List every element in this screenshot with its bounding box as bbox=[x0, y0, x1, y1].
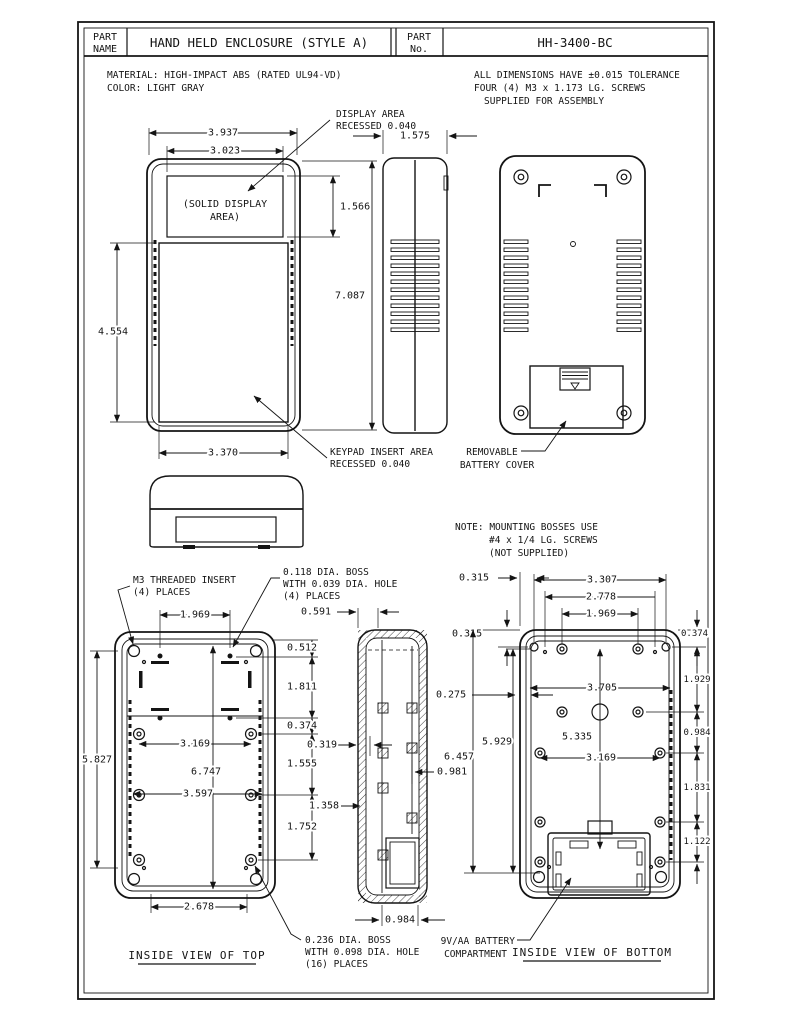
battery-compartment-callout-line2: COMPARTMENT bbox=[444, 949, 507, 960]
dim-top-left-height: 5.827 bbox=[82, 755, 112, 766]
dim-dot-span: 2.778 bbox=[586, 592, 616, 603]
tolerance-note-line1: ALL DIMENSIONS HAVE ±0.015 TOLERANCE bbox=[474, 70, 680, 81]
mounting-note-line1: NOTE: MOUNTING BOSSES USE bbox=[455, 522, 598, 533]
dim-bottom-width: 0.984 bbox=[385, 915, 415, 926]
bottom-view-title: INSIDE VIEW OF BOTTOM bbox=[512, 946, 672, 959]
dim-boss-row2: 1.555 bbox=[287, 759, 317, 770]
dim-row1: 1.929 bbox=[683, 675, 710, 685]
dim-overall-height: 6.457 bbox=[444, 752, 474, 763]
dim-boss-wide-span: 3.597 bbox=[183, 789, 213, 800]
material-note-line1: MATERIAL: HIGH-IMPACT ABS (RATED UL94-VD… bbox=[107, 70, 342, 81]
part-name-label-line1: PART bbox=[93, 32, 117, 43]
mounting-note-line3: (NOT SUPPLIED) bbox=[489, 548, 569, 559]
m3-threaded-inserts bbox=[151, 654, 239, 721]
slot-right bbox=[248, 671, 252, 688]
dim-wall: 0.319 bbox=[307, 740, 337, 751]
battery-cover-callout-line2: BATTERY COVER bbox=[460, 460, 535, 471]
corner-screw-holes bbox=[129, 646, 262, 885]
dim-row3: 1.831 bbox=[683, 783, 710, 793]
dim-inner-height: 6.747 bbox=[191, 767, 221, 778]
keypad-callout-line1: KEYPAD INSERT AREA bbox=[330, 447, 433, 458]
solid-display-text-line1: (SOLID DISPLAY bbox=[183, 199, 267, 210]
dim-center-height: 5.335 bbox=[562, 732, 592, 743]
foot-right bbox=[258, 545, 270, 549]
battery-cover-callout-line1: REMOVABLE bbox=[466, 447, 518, 458]
top-view-title: INSIDE VIEW OF TOP bbox=[128, 949, 265, 962]
end-recess bbox=[176, 517, 276, 542]
boss4-callout-line3: (4) PLACES bbox=[283, 591, 340, 602]
dim-top-step: 0.591 bbox=[301, 607, 331, 618]
boss4-leader bbox=[233, 578, 280, 647]
dim-insert-rows: 1.811 bbox=[287, 682, 317, 693]
corner-screw-icons bbox=[514, 170, 631, 420]
display-area-leader bbox=[248, 120, 330, 191]
dim-bottom-span: 2.678 bbox=[184, 902, 214, 913]
dim-row-gap: 0.374 bbox=[287, 721, 317, 732]
m3-insert-callout-line2: (4) PLACES bbox=[133, 587, 190, 598]
corner-bracket-right bbox=[594, 185, 606, 197]
dim-front-overall-height: 7.087 bbox=[335, 291, 365, 302]
section-hatch bbox=[358, 630, 427, 903]
keypad-leader bbox=[254, 396, 327, 458]
dim-top-inset: 0.512 bbox=[287, 643, 317, 654]
m3-insert-callout-line1: M3 THREADED INSERT bbox=[133, 575, 236, 586]
part-no-label-line2: No. bbox=[410, 44, 428, 55]
dim-boss-depth: 1.358 bbox=[309, 801, 339, 812]
dim-boss-height: 0.981 bbox=[437, 767, 467, 778]
drawing-sheet: PART NAME HAND HELD ENCLOSURE (STYLE A) … bbox=[0, 0, 791, 1024]
dim-front-overall-width: 3.937 bbox=[208, 128, 238, 139]
boss16-callout-line2: WITH 0.098 DIA. HOLE bbox=[305, 947, 420, 958]
foot-left bbox=[183, 545, 195, 549]
battery-well-section bbox=[386, 838, 419, 888]
battery-compartment bbox=[548, 821, 650, 895]
dim-inner-width: 3.705 bbox=[587, 683, 617, 694]
back-view: REMOVABLE BATTERY COVER bbox=[460, 156, 645, 471]
dim-left-height: 5.929 bbox=[482, 737, 512, 748]
dim-wall-bottom: 0.275 bbox=[436, 690, 466, 701]
dim-insert-span-bottom: 1.969 bbox=[586, 609, 616, 620]
dim-corner-inset-v: 0.315 bbox=[452, 629, 482, 640]
section-view-dimensions: 0.591 0.319 1.358 0.981 0.984 bbox=[301, 607, 467, 927]
dim-side-width: 1.575 bbox=[400, 131, 430, 142]
technical-drawing: PART NAME HAND HELD ENCLOSURE (STYLE A) … bbox=[0, 0, 791, 1024]
front-view-dimensions: 3.937 3.023 1.566 7.087 4.554 3.370 bbox=[98, 128, 377, 460]
part-no-label-line1: PART bbox=[407, 32, 431, 43]
dim-keypad-height: 4.554 bbox=[98, 327, 128, 338]
solid-display-text-line2: AREA) bbox=[210, 212, 240, 223]
part-name-value: HAND HELD ENCLOSURE (STYLE A) bbox=[150, 35, 368, 50]
display-area-callout-line1: DISPLAY AREA bbox=[336, 109, 405, 120]
dim-right-inset: 0.374 bbox=[681, 629, 708, 639]
center-hole bbox=[571, 242, 576, 247]
front-view-callouts: DISPLAY AREA RECESSED 0.040 KEYPAD INSER… bbox=[248, 109, 433, 470]
top-view-dimensions: 1.969 5.827 0.512 1.811 0.374 1.555 1.75… bbox=[82, 610, 318, 914]
battery-cover-leader bbox=[521, 421, 566, 451]
dim-display-width: 3.023 bbox=[210, 146, 240, 157]
battery-latch-icon bbox=[560, 368, 590, 390]
part-no-value: HH-3400-BC bbox=[537, 35, 612, 50]
mounting-note-line2: #4 x 1/4 LG. SCREWS bbox=[489, 535, 598, 546]
tolerance-note-line3: SUPPLIED FOR ASSEMBLY bbox=[484, 96, 604, 107]
keypad-callout-line2: RECESSED 0.040 bbox=[330, 459, 410, 470]
boss16-callout-line1: 0.236 DIA. BOSS bbox=[305, 935, 391, 946]
dim-keypad-width: 3.370 bbox=[208, 448, 238, 459]
dim-corner-inset-h: 0.315 bbox=[459, 573, 489, 584]
front-view: (SOLID DISPLAY AREA) bbox=[147, 159, 300, 431]
boss-tabs bbox=[378, 703, 417, 860]
dim-insert-span: 1.969 bbox=[180, 610, 210, 621]
back-vents-right bbox=[617, 240, 641, 332]
dim-boss-span: 3.169 bbox=[180, 739, 210, 750]
general-notes: MATERIAL: HIGH-IMPACT ABS (RATED UL94-VD… bbox=[107, 70, 680, 559]
section-view bbox=[358, 630, 427, 903]
boss4-callout-line2: WITH 0.039 DIA. HOLE bbox=[283, 579, 398, 590]
boss4-callout-line1: 0.118 DIA. BOSS bbox=[283, 567, 369, 578]
boss16-leader bbox=[255, 866, 301, 940]
title-block: PART NAME HAND HELD ENCLOSURE (STYLE A) … bbox=[84, 28, 708, 56]
keypad-recess-area bbox=[159, 243, 288, 422]
inside-view-of-top bbox=[115, 632, 275, 898]
dim-display-height: 1.566 bbox=[340, 202, 370, 213]
dim-boss-row3: 1.752 bbox=[287, 822, 317, 833]
dim-row2: 0.984 bbox=[683, 728, 710, 738]
back-vents-left bbox=[504, 240, 528, 332]
sheet-border bbox=[78, 22, 714, 999]
end-view bbox=[150, 476, 303, 549]
boss16-callout-line3: (16) PLACES bbox=[305, 959, 368, 970]
dim-screw-span: 3.307 bbox=[587, 575, 617, 586]
top-view-callouts: M3 THREADED INSERT (4) PLACES 0.118 DIA.… bbox=[118, 567, 420, 970]
part-name-label-line2: NAME bbox=[93, 44, 117, 55]
battery-compartment-callout-line1: 9V/AA BATTERY bbox=[441, 936, 516, 947]
corner-bracket-left bbox=[539, 185, 551, 197]
slot-left bbox=[139, 671, 143, 688]
material-note-line2: COLOR: LIGHT GRAY bbox=[107, 83, 205, 94]
dim-boss-span-bottom: 3.169 bbox=[586, 753, 616, 764]
dim-row4: 1.122 bbox=[683, 837, 710, 847]
tolerance-note-line2: FOUR (4) M3 x 1.173 LG. SCREWS bbox=[474, 83, 646, 94]
